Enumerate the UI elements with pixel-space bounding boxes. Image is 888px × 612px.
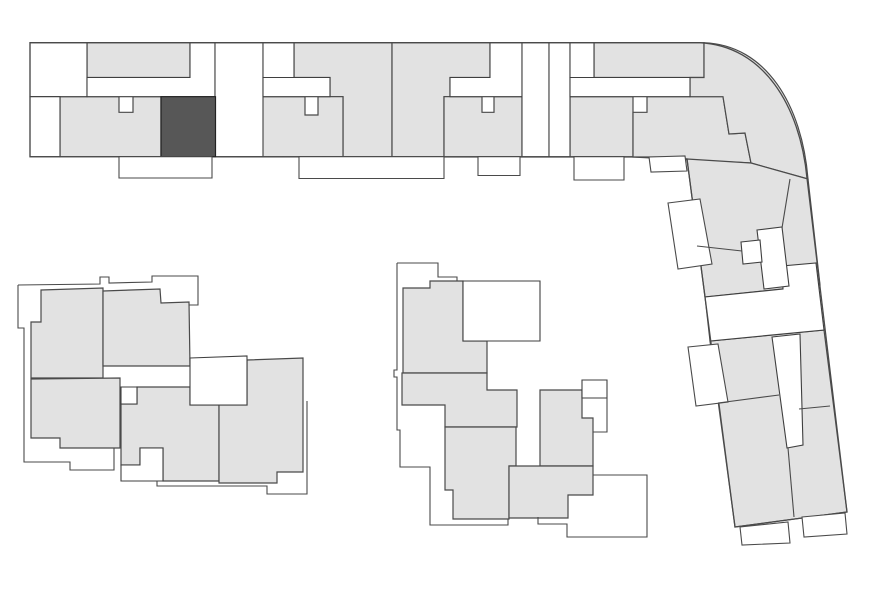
unit-a-lower-4[interactable]	[570, 97, 633, 157]
unit-a-top-bar-4[interactable]	[594, 43, 704, 78]
void-a-strip-1	[30, 97, 60, 157]
void-a-corridor-2	[522, 43, 549, 157]
void-c-rect	[463, 281, 540, 341]
balcony-a-3	[478, 157, 520, 176]
unit-c3[interactable]	[445, 427, 516, 519]
balcony-a-4	[574, 157, 624, 180]
void-b-gap	[190, 356, 247, 405]
balcony-a-1	[119, 157, 212, 178]
void-c-balcony-tr	[582, 380, 607, 398]
void-wing-cut-square	[741, 240, 762, 264]
unit-c2[interactable]	[402, 373, 517, 427]
unit-c5[interactable]	[509, 466, 593, 518]
unit-b3[interactable]	[31, 378, 120, 448]
site-plan	[0, 0, 888, 612]
unit-a-lower-2[interactable]	[262, 97, 343, 157]
void-a-strip-4	[549, 43, 570, 157]
balcony-a-2	[299, 157, 444, 179]
void-a-square-4	[570, 43, 594, 78]
void-a-square-2	[263, 43, 294, 78]
balcony-junction	[649, 156, 687, 172]
unit-a-lower-3[interactable]	[444, 97, 522, 157]
unit-b2[interactable]	[103, 289, 190, 366]
unit-b1[interactable]	[31, 288, 103, 378]
unit-a-lower-1[interactable]	[60, 97, 161, 157]
outline-c-topleft	[397, 263, 457, 281]
balcony-wing-bottom-2	[802, 513, 847, 537]
void-a-band-2	[263, 78, 330, 97]
void-b-notch-1	[121, 387, 137, 404]
void-a-topleft	[30, 43, 87, 97]
void-a-band-4	[570, 78, 690, 97]
outline-c-right	[593, 398, 607, 432]
selected-unit[interactable]	[161, 97, 216, 157]
unit-c4[interactable]	[540, 390, 593, 466]
unit-a-top-bar-1[interactable]	[87, 43, 190, 78]
site-plan-svg	[0, 0, 888, 612]
void-a-corridor-1	[215, 43, 263, 157]
